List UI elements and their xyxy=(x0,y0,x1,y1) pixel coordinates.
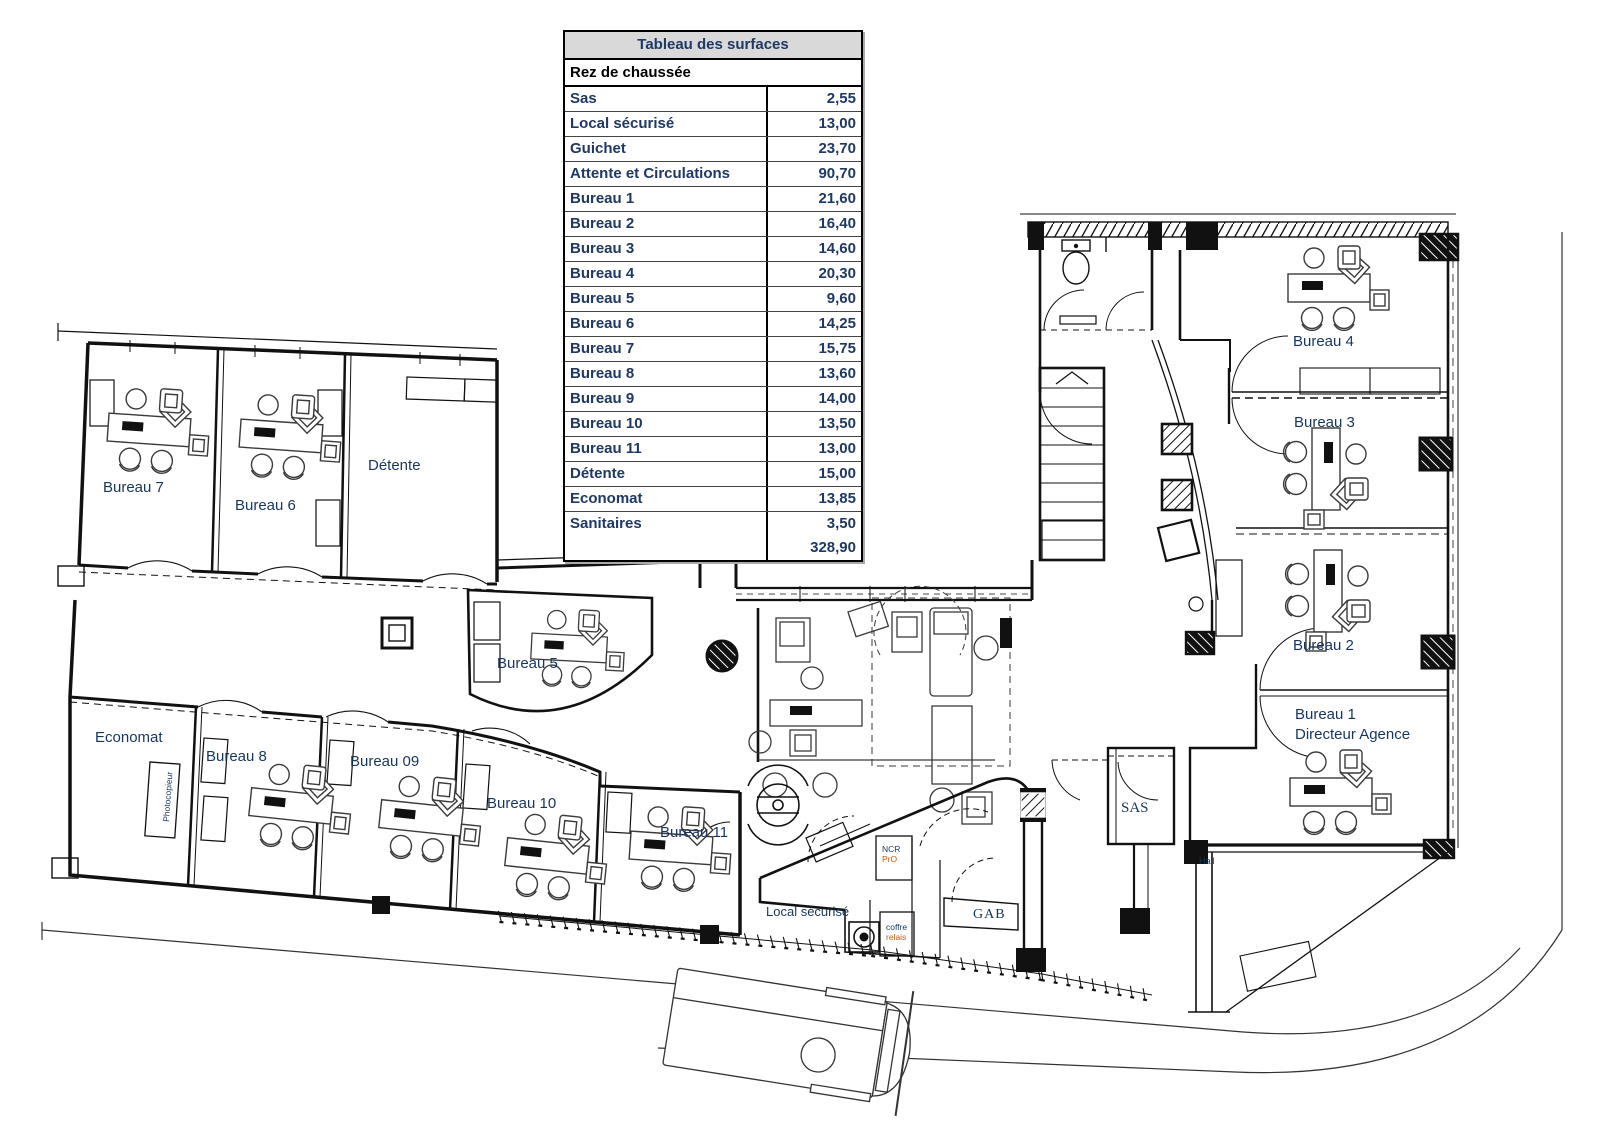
label-ncr-1: NCR xyxy=(882,844,900,854)
facade-tick-line xyxy=(498,911,1152,1000)
sanitaires xyxy=(1040,237,1152,330)
floor-plan-page: Bureau 7 Bureau 6 Détente Economat Burea… xyxy=(0,0,1600,1145)
surfaces-table-title: Tableau des surfaces xyxy=(565,32,861,60)
label-bureau3: Bureau 3 xyxy=(1294,414,1355,431)
label-directeur-agence: Directeur Agence xyxy=(1295,726,1410,743)
table-row: Sas2,55 xyxy=(565,87,861,112)
guichet-area xyxy=(707,586,1012,824)
surfaces-table: Tableau des surfaces Rez de chaussée Sas… xyxy=(563,30,863,562)
table-row: Bureau 314,60 xyxy=(565,237,861,262)
toilet-icon xyxy=(1062,240,1090,284)
label-bureau8: Bureau 8 xyxy=(206,748,267,765)
label-bureau5: Bureau 5 xyxy=(497,655,558,672)
sas-room xyxy=(1052,748,1174,934)
table-row: Attente et Circulations90,70 xyxy=(565,162,861,187)
label-local-securise: Local sécurisé xyxy=(766,904,849,919)
table-row: Bureau 1113,00 xyxy=(565,437,861,462)
table-row: Bureau 914,00 xyxy=(565,387,861,412)
label-bureau1: Bureau 1 xyxy=(1295,706,1356,723)
table-row: Bureau 59,60 xyxy=(565,287,861,312)
table-row: Sanitaires3,50 xyxy=(565,512,861,536)
corridor-column xyxy=(382,618,412,648)
label-gab: GAB xyxy=(973,907,1006,922)
surfaces-table-rows: Sas2,55Local sécurisé13,00Guichet23,70At… xyxy=(565,87,861,536)
label-bureau6: Bureau 6 xyxy=(235,497,296,514)
surfaces-table-section: Rez de chaussée xyxy=(565,60,861,87)
label-bureau10: Bureau 10 xyxy=(487,795,556,812)
label-bureau09: Bureau 09 xyxy=(350,753,419,770)
label-bureau4: Bureau 4 xyxy=(1293,333,1354,350)
surfaces-table-total-row: 328,90 xyxy=(565,536,861,560)
label-bureau11: Bureau 11 xyxy=(660,824,728,841)
table-row: Economat13,85 xyxy=(565,487,861,512)
table-row: Bureau 216,40 xyxy=(565,212,861,237)
table-row: Bureau 420,30 xyxy=(565,262,861,287)
right-wing xyxy=(1020,214,1458,1012)
label-bureau7: Bureau 7 xyxy=(103,479,164,496)
table-row: Bureau 813,60 xyxy=(565,362,861,387)
table-row: Bureau 614,25 xyxy=(565,312,861,337)
surfaces-total: 328,90 xyxy=(766,536,861,560)
label-bureau2: Bureau 2 xyxy=(1293,637,1354,654)
table-row: Bureau 715,75 xyxy=(565,337,861,362)
label-economat: Economat xyxy=(95,729,163,746)
label-detente: Détente xyxy=(368,457,421,474)
staircase xyxy=(1040,368,1104,560)
table-row: Local sécurisé13,00 xyxy=(565,112,861,137)
table-row: Détente15,00 xyxy=(565,462,861,487)
label-ncr-2: PrO xyxy=(882,854,898,864)
label-coffre-1: coffre xyxy=(886,922,907,932)
table-row: Bureau 1013,50 xyxy=(565,412,861,437)
revolving-door-icon xyxy=(748,765,808,845)
label-coffre-2: relais xyxy=(886,932,906,942)
label-sas: SAS xyxy=(1121,800,1149,816)
label-photocopieur: Photocopieur xyxy=(161,771,174,822)
table-row: Bureau 121,60 xyxy=(565,187,861,212)
armored-truck xyxy=(660,954,919,1116)
label-hall: Hall xyxy=(1199,856,1215,866)
table-row: Guichet23,70 xyxy=(565,137,861,162)
